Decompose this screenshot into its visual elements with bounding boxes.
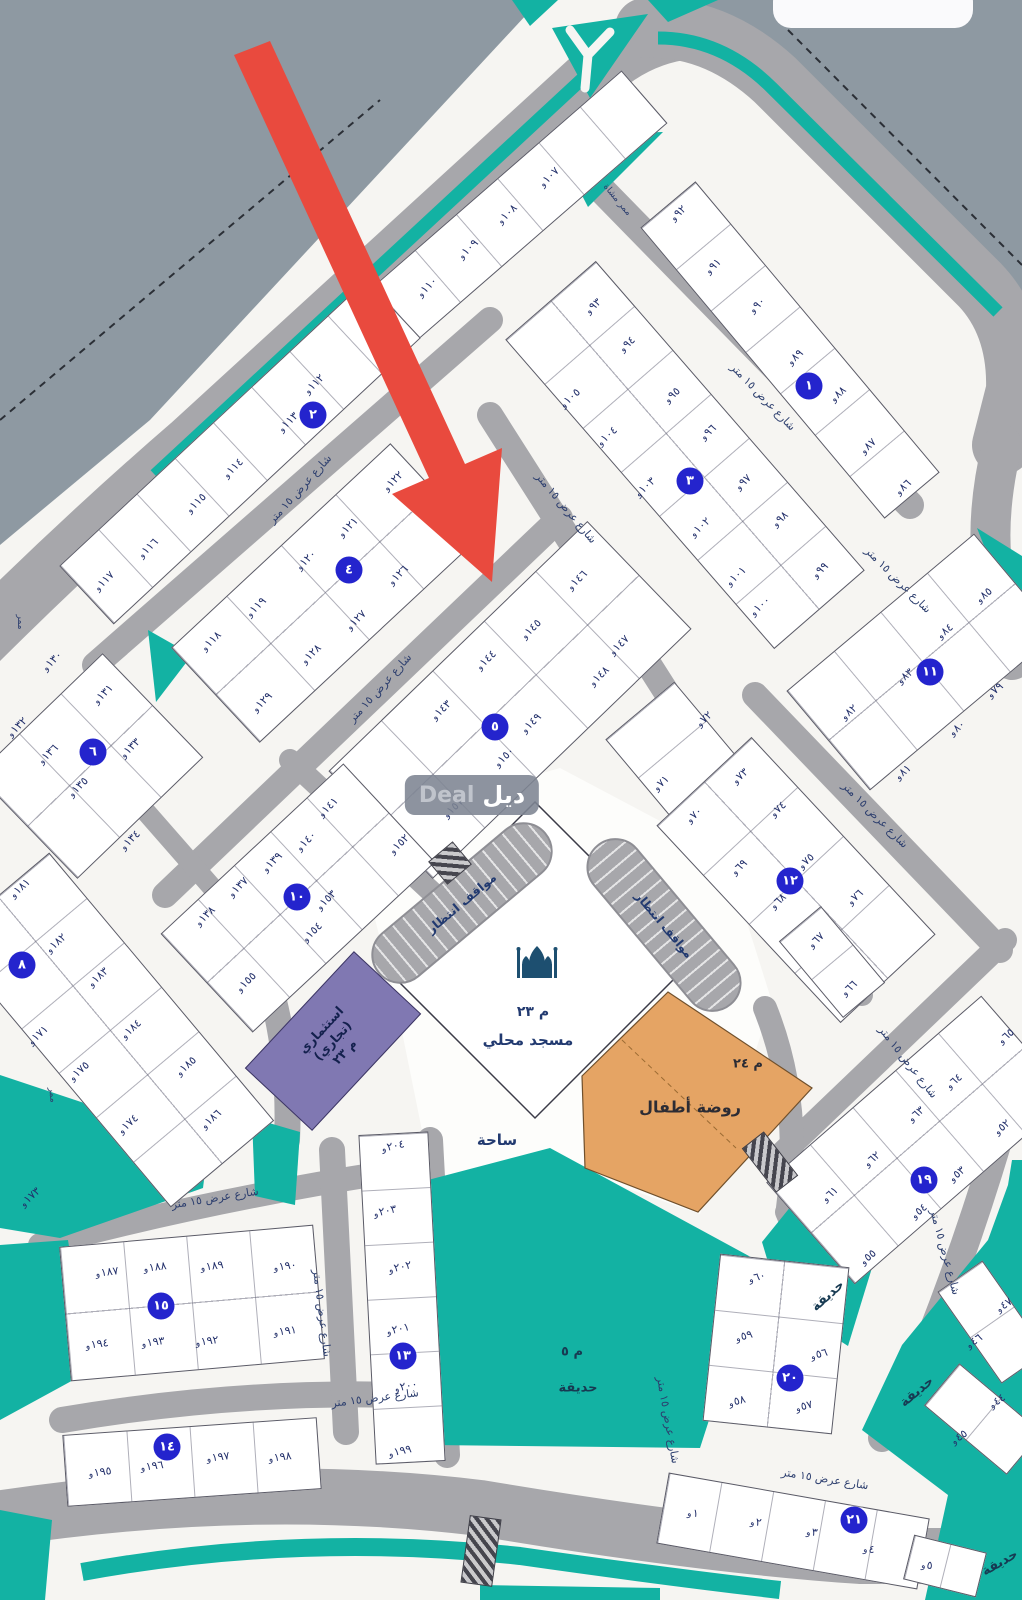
parcel-block bbox=[59, 1225, 325, 1382]
plot-number: و٥ bbox=[921, 1559, 933, 1571]
watermark-arabic: ديل bbox=[482, 781, 525, 809]
plot-number: و١٨٨ bbox=[143, 1260, 167, 1274]
watermark: Deal ديل bbox=[405, 775, 539, 815]
watermark-latin: Deal bbox=[419, 783, 475, 808]
plot-number: و١٩١ bbox=[273, 1324, 297, 1338]
block-number-circle: ١٤ bbox=[154, 1434, 181, 1461]
plot-map: مواقف انتظار مواقف انتظار استثماري (تجار… bbox=[0, 0, 1022, 1600]
block-number-circle: ٨ bbox=[9, 952, 36, 979]
plot-number: و١٩٨ bbox=[268, 1450, 292, 1464]
top-overlay-pill bbox=[773, 0, 973, 28]
block-number-circle: ٢٠ bbox=[777, 1365, 804, 1392]
mosque-name: مسجد محلي bbox=[483, 1031, 574, 1049]
parcel-block bbox=[703, 1254, 850, 1435]
plot-number: و١٩٠ bbox=[273, 1259, 297, 1273]
plot-number: و١ bbox=[687, 1507, 699, 1519]
plot-number: و٤ bbox=[863, 1543, 875, 1555]
plot-number: و١٩٦ bbox=[140, 1459, 164, 1473]
plot-number: و١٩٢ bbox=[195, 1334, 219, 1348]
block-number-circle: ٢١ bbox=[841, 1507, 868, 1534]
kindergarten-code: م ٢٤ bbox=[733, 1057, 763, 1072]
block-number-circle: ١٢ bbox=[777, 868, 804, 895]
block-number-circle: ١١ bbox=[917, 659, 944, 686]
kindergarten-name: روضة أطفال bbox=[639, 1098, 741, 1117]
park-label: حديقة bbox=[559, 1381, 598, 1396]
plot-number: و٣ bbox=[806, 1526, 818, 1538]
plot-number: و١٨٩ bbox=[200, 1259, 224, 1273]
plot-number: و٢ bbox=[750, 1516, 762, 1528]
block-number-circle: ٣ bbox=[677, 468, 704, 495]
plaza-label: ساحة bbox=[477, 1131, 517, 1149]
plot-number: و١٨٧ bbox=[95, 1265, 119, 1279]
block-number-circle: ١٣ bbox=[390, 1343, 417, 1370]
block-number-circle: ١٠ bbox=[284, 884, 311, 911]
plot-number: و١٩٤ bbox=[85, 1337, 109, 1351]
block-number-circle: ٢ bbox=[300, 402, 327, 429]
plot-number: و١٩٥ bbox=[88, 1465, 112, 1479]
block-number-circle: ٦ bbox=[80, 739, 107, 766]
park-label: م ٥ bbox=[561, 1345, 583, 1360]
passage-label: ممر bbox=[15, 615, 25, 630]
block-number-circle: ٥ bbox=[482, 714, 509, 741]
mosque-code: م ٢٣ bbox=[517, 1004, 549, 1020]
block-number-circle: ٤ bbox=[336, 557, 363, 584]
plot-number: و١٩٧ bbox=[206, 1450, 230, 1464]
block-number-circle: ١ bbox=[796, 373, 823, 400]
block-number-circle: ١٩ bbox=[911, 1167, 938, 1194]
passage-label: ممر bbox=[46, 1087, 57, 1103]
mosque-icon bbox=[515, 944, 559, 980]
block-number-circle: ١٥ bbox=[148, 1293, 175, 1320]
plot-number: و١٩٣ bbox=[141, 1335, 165, 1349]
